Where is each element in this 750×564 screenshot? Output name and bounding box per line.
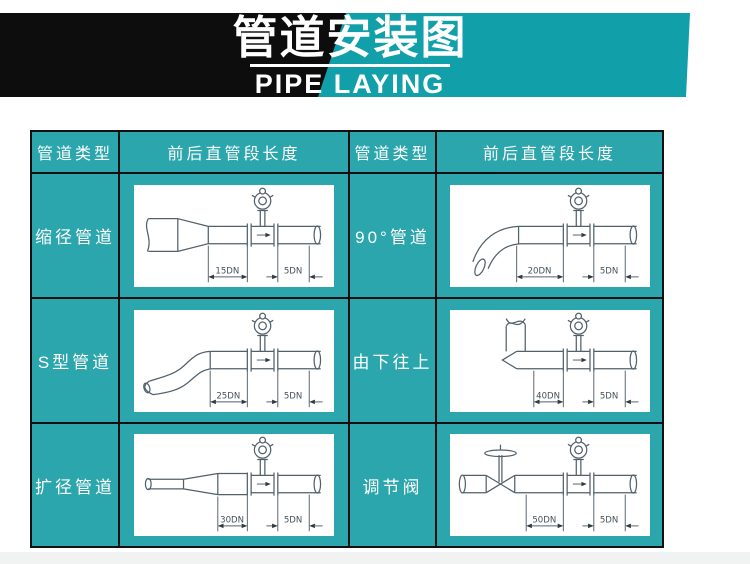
diagram-panel: 40DN 5DN (450, 310, 650, 412)
footer-strip (0, 552, 750, 564)
pipe-diagram-elbow: 20DN 5DN (450, 185, 650, 287)
upstream-dim-label: 25DN (216, 391, 240, 401)
diagram-cell-regulating-valve: 50DN 5DN (437, 424, 662, 546)
header-cell-pipe-type-1: 管道类型 (32, 132, 118, 172)
header-cell-pipe-type-2: 管道类型 (350, 132, 435, 172)
upstream-dim-label: 15DN (215, 266, 239, 276)
diagram-cell-bottom-up-pipe: 40DN 5DN (437, 299, 662, 422)
title-underline (250, 64, 450, 67)
diagram-cell-reducer-pipe: 15DN 5DN (120, 174, 348, 297)
page: 管道安装图 PIPE LAYING 管道类型 前后直管段长度 管道类型 前后直管… (0, 0, 750, 564)
diagram-panel: 30DN 5DN (134, 434, 334, 536)
type-cell-regulating-valve: 调节阀 (350, 424, 435, 546)
diagram-cell-s-pipe: 25DN 5DN (120, 299, 348, 422)
upstream-dim-label: 30DN (220, 515, 244, 525)
diagram-panel: 15DN 5DN (134, 185, 334, 287)
pipe-diagram-expander: 30DN 5DN (134, 434, 334, 536)
page-subtitle: PIPE LAYING (160, 69, 540, 100)
diagram-panel: 50DN 5DN (450, 434, 650, 536)
upstream-dim-label: 40DN (536, 391, 560, 401)
diagram-panel: 20DN 5DN (450, 185, 650, 287)
upstream-dim-label: 50DN (532, 515, 556, 525)
downstream-dim-label: 5DN (284, 266, 302, 276)
banner: 管道安装图 PIPE LAYING (160, 14, 540, 100)
downstream-dim-label: 5DN (284, 515, 302, 525)
type-cell-bottom-up-pipe: 由下往上 (350, 299, 435, 422)
downstream-dim-label: 5DN (599, 266, 617, 276)
type-cell-expander-pipe: 扩径管道 (32, 424, 118, 546)
pipe-diagram-valve: 50DN 5DN (450, 434, 650, 536)
pipe-laying-table: 管道类型 前后直管段长度 管道类型 前后直管段长度 缩径管道 15DN 5DN … (30, 130, 664, 548)
diagram-cell-90deg-pipe: 20DN 5DN (437, 174, 662, 297)
pipe-diagram-s-type: 25DN 5DN (134, 310, 334, 412)
type-cell-90deg-pipe: 90°管道 (350, 174, 435, 297)
type-cell-reducer-pipe: 缩径管道 (32, 174, 118, 297)
downstream-dim-label: 5DN (599, 515, 617, 525)
downstream-dim-label: 5DN (599, 391, 617, 401)
header-cell-straight-run-2: 前后直管段长度 (437, 132, 662, 172)
pipe-diagram-vertical-riser: 40DN 5DN (450, 310, 650, 412)
downstream-dim-label: 5DN (284, 391, 302, 401)
upstream-dim-label: 20DN (527, 266, 551, 276)
type-cell-s-pipe: S型管道 (32, 299, 118, 422)
diagram-cell-expander-pipe: 30DN 5DN (120, 424, 348, 546)
pipe-diagram-reducer: 15DN 5DN (134, 185, 334, 287)
page-title: 管道安装图 (160, 14, 540, 63)
diagram-panel: 25DN 5DN (134, 310, 334, 412)
header-cell-straight-run-1: 前后直管段长度 (120, 132, 348, 172)
